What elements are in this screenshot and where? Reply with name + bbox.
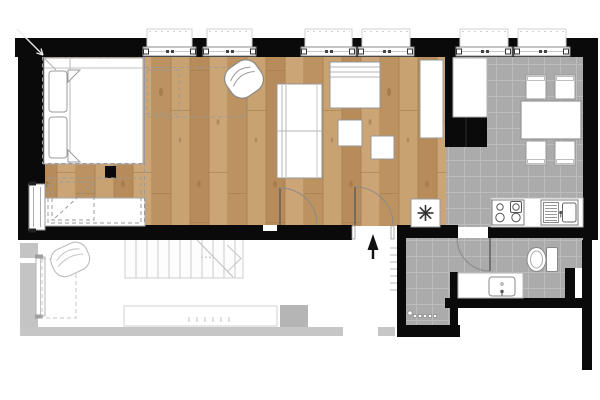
chair-3: [526, 141, 546, 165]
side-table-1: [338, 120, 362, 146]
ghost-wall-bottom-right: [378, 327, 395, 336]
floor-plan-drawing: [0, 0, 600, 400]
ghost-staircase: [125, 239, 243, 278]
side-table-2: [371, 136, 394, 159]
window-1: [143, 29, 196, 56]
desk-dresser: [45, 198, 145, 226]
toilet: [527, 248, 558, 272]
chair-2: [555, 75, 575, 99]
window-5: [456, 29, 512, 56]
floor-plan: [0, 0, 600, 400]
wall-bath-south: [445, 298, 592, 308]
chair-1: [526, 75, 546, 99]
two-seat-sofa: [277, 84, 322, 178]
door-jamb-right: [391, 226, 394, 239]
bath-east-gap: [575, 268, 582, 298]
chair-4: [555, 141, 575, 165]
wall-kitchen-column: [445, 57, 453, 117]
pillow: [49, 117, 67, 158]
ghost-window: [35, 255, 45, 319]
window-3: [301, 29, 356, 56]
left-wall-window: [29, 182, 45, 233]
dining-table: [521, 101, 581, 139]
wall-notch-white: [263, 225, 277, 231]
wall-bed-stub: [105, 166, 116, 178]
fridge-tall-cabinet: [453, 58, 487, 117]
kitchen-sink: [541, 200, 578, 225]
wall-right-bar-short: [565, 268, 575, 298]
wall-kitchen-north: [488, 227, 583, 238]
daybed-sofa: [330, 62, 380, 108]
window-2: [203, 29, 256, 56]
double-bed: [44, 58, 143, 164]
ghost-block: [280, 305, 308, 327]
vanity-with-sink: [458, 273, 523, 298]
asterisk-appliance: [411, 199, 440, 227]
wall-bottom-a: [18, 225, 352, 240]
wall-hall-left: [397, 228, 406, 337]
window-4: [358, 29, 414, 56]
door-jamb-left: [352, 226, 355, 239]
ghost-wall-left: [20, 263, 38, 335]
faucet: [559, 211, 562, 214]
tall-wardrobe: [420, 60, 443, 138]
faucet: [500, 290, 503, 293]
ghost-wall-bottom: [20, 327, 343, 336]
ghost-bar-counter: [124, 306, 277, 326]
wall-right-bar-long: [582, 240, 592, 370]
cooktop: [492, 200, 524, 225]
wall-right-upper: [583, 38, 598, 240]
window-6: [514, 29, 570, 56]
pillow: [49, 71, 67, 112]
asterisk-symbol: [418, 205, 434, 221]
